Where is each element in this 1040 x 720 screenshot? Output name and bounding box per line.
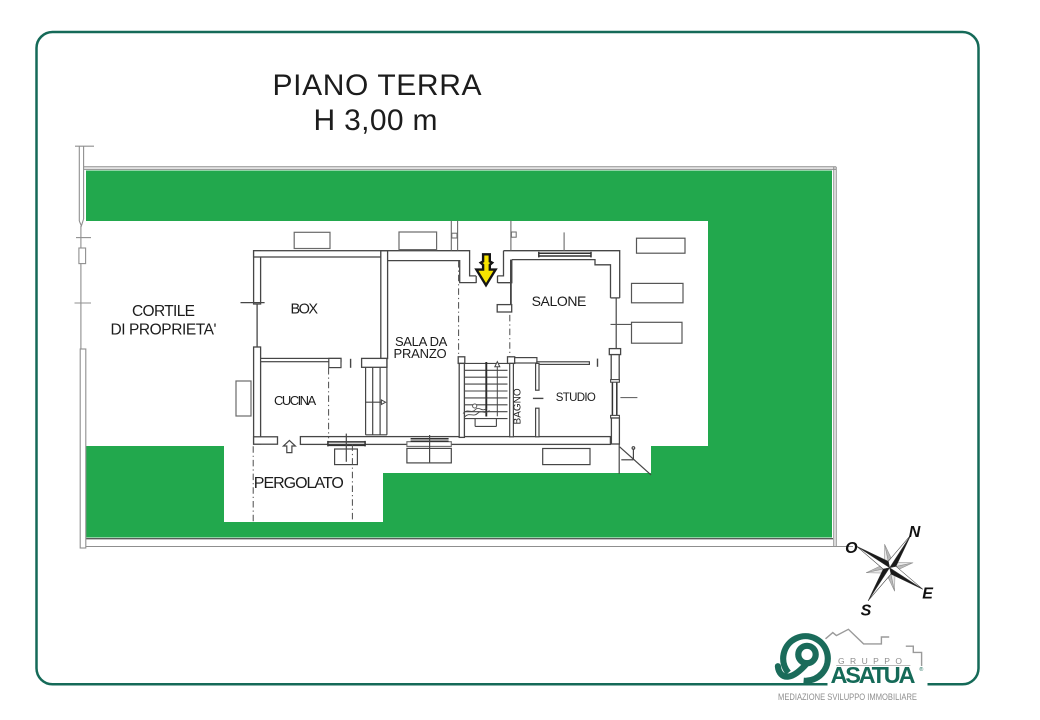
svg-text:SALONE: SALONE <box>532 293 586 309</box>
svg-text:ASATUA: ASATUA <box>831 662 916 688</box>
svg-text:DI PROPRIETA': DI PROPRIETA' <box>111 322 217 339</box>
svg-text:S: S <box>861 602 872 619</box>
svg-text:BAGNO: BAGNO <box>512 388 523 424</box>
svg-text:CORTILE: CORTILE <box>132 303 195 320</box>
svg-text:O: O <box>845 540 858 557</box>
svg-text:PRANZO: PRANZO <box>394 346 447 361</box>
svg-text:BOX: BOX <box>291 302 319 318</box>
svg-text:®: ® <box>919 666 923 673</box>
svg-text:PERGOLATO: PERGOLATO <box>254 475 344 492</box>
svg-text:PIANO TERRA: PIANO TERRA <box>273 69 482 102</box>
svg-text:H 3,00 m: H 3,00 m <box>314 104 438 137</box>
svg-text:STUDIO: STUDIO <box>556 392 596 404</box>
svg-text:N: N <box>909 524 921 541</box>
svg-text:MEDIAZIONE SVILUPPO IMMOBILIAR: MEDIAZIONE SVILUPPO IMMOBILIARE <box>778 692 917 702</box>
svg-text:CUCINA: CUCINA <box>274 393 317 408</box>
svg-text:E: E <box>922 586 934 603</box>
